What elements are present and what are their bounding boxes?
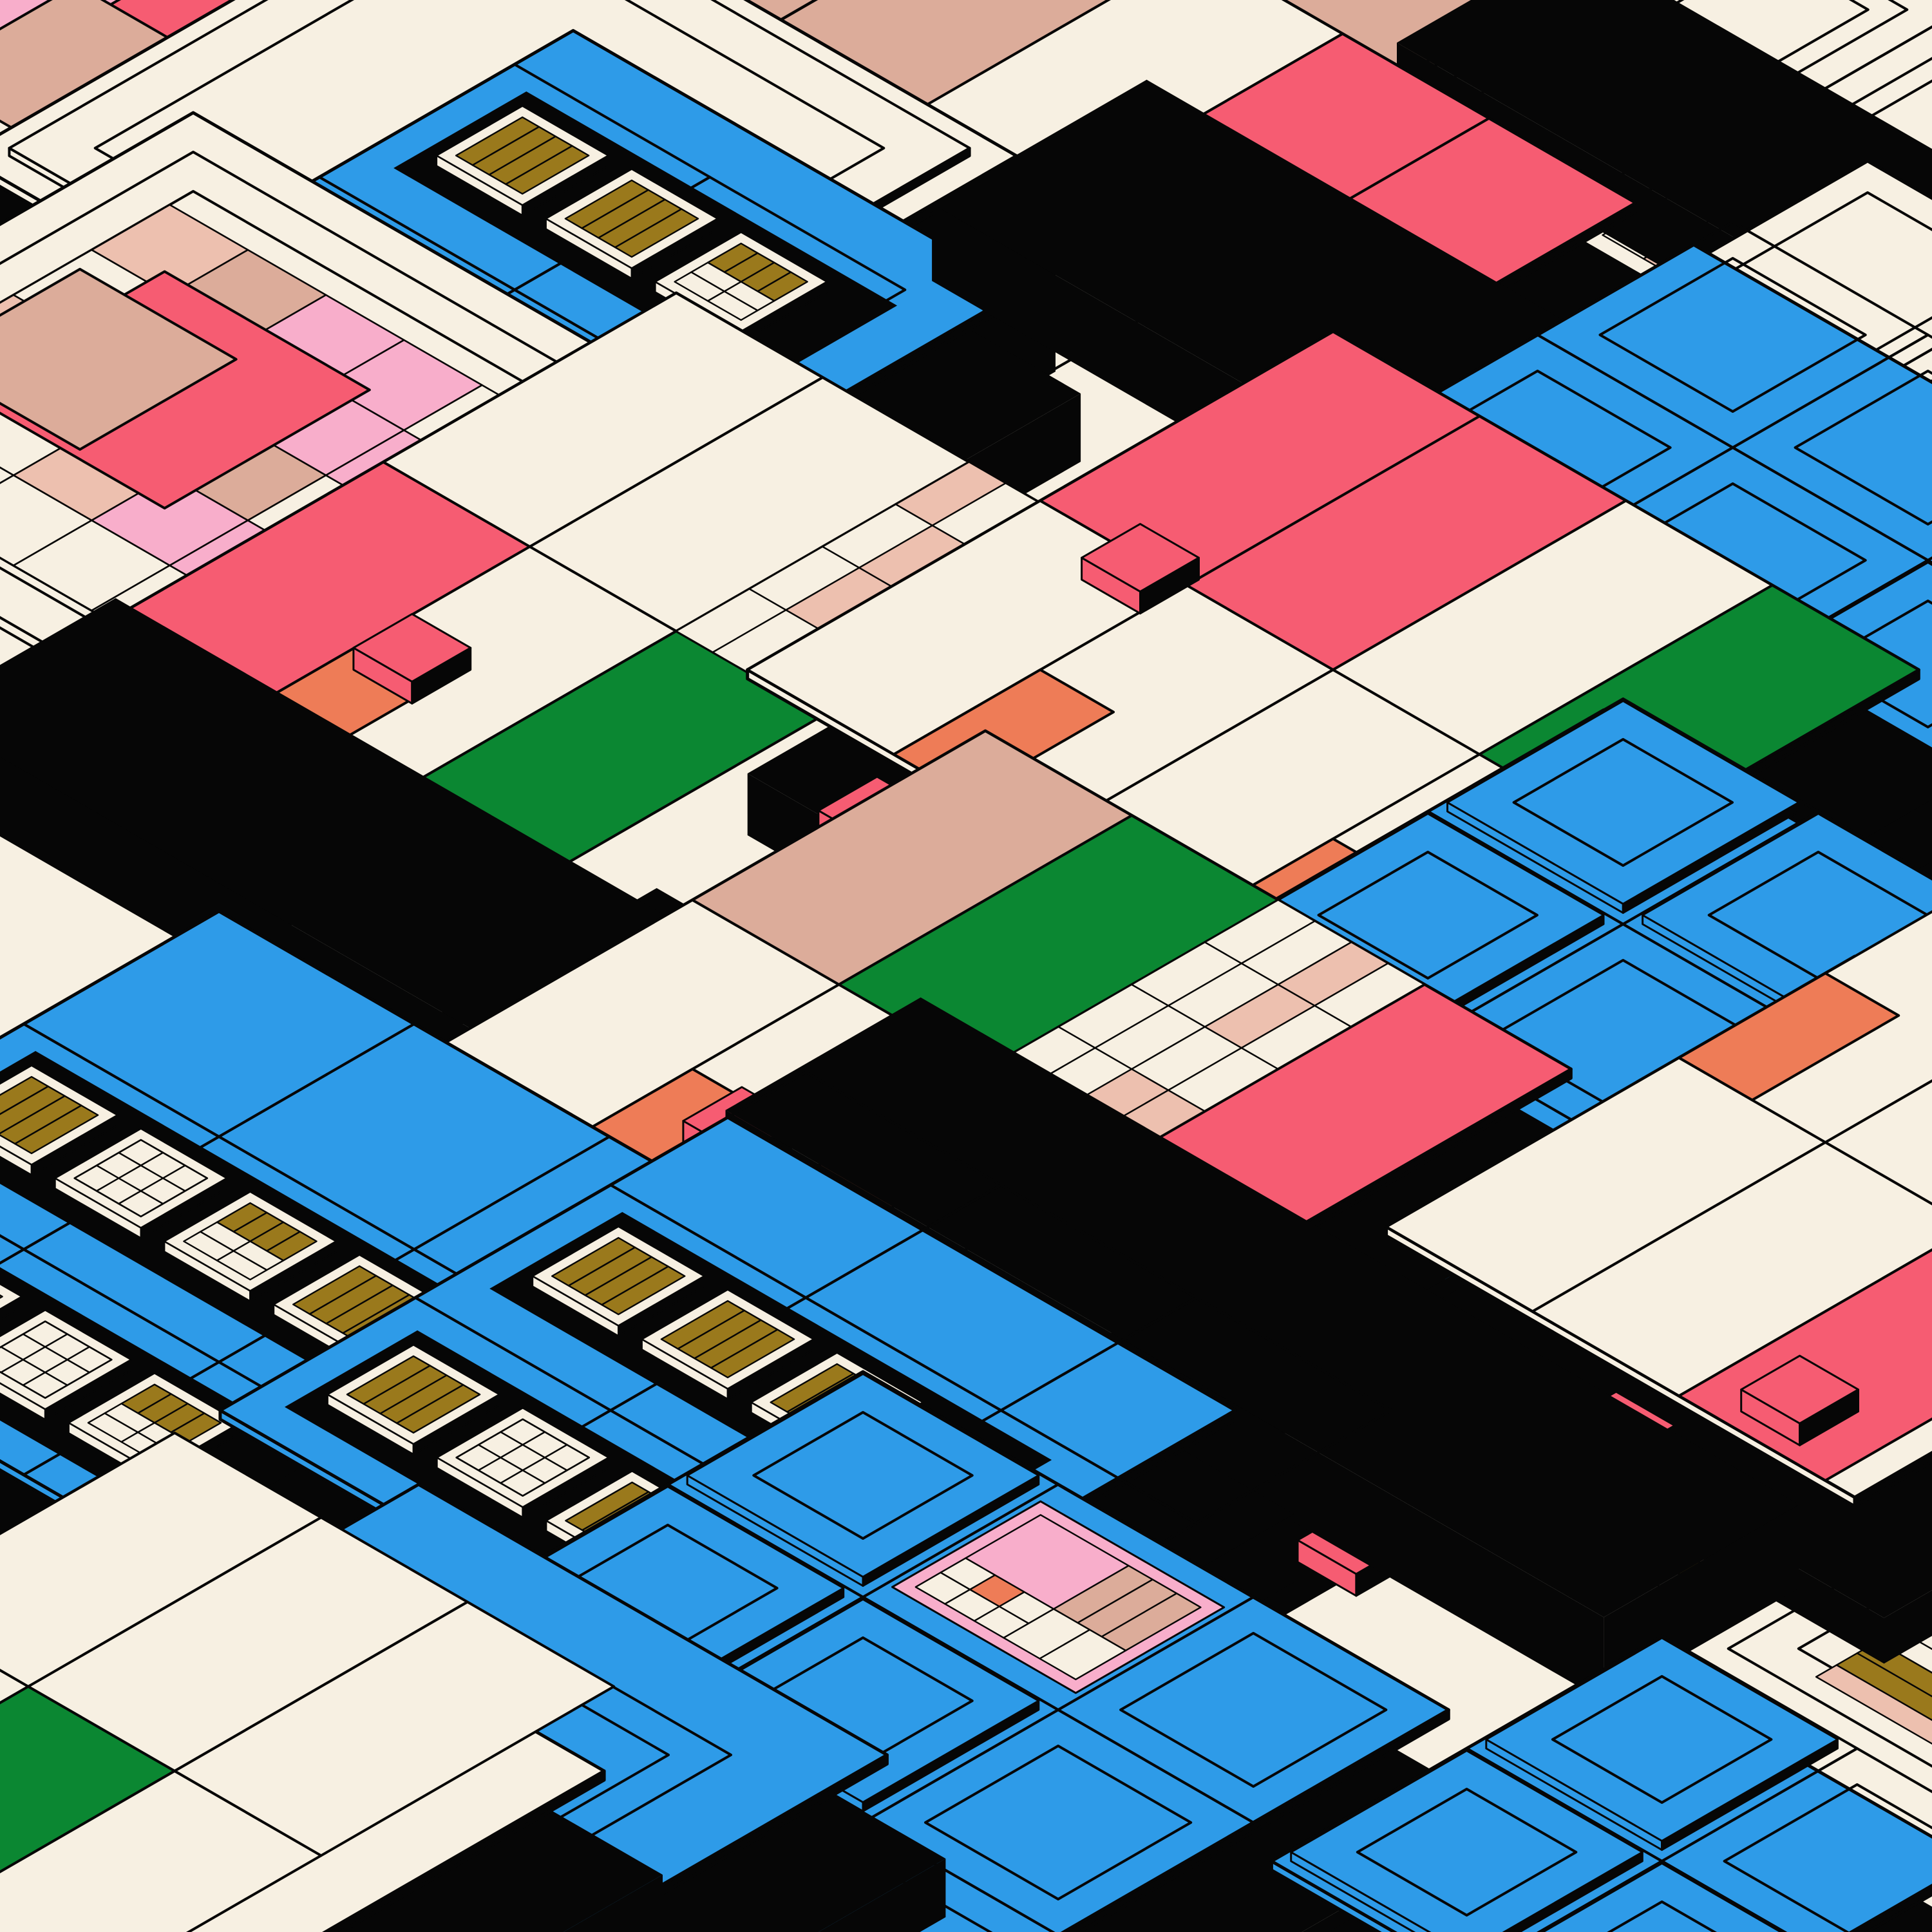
- scene-canvas: [0, 0, 1932, 1932]
- artwork-frame: [0, 0, 1932, 1932]
